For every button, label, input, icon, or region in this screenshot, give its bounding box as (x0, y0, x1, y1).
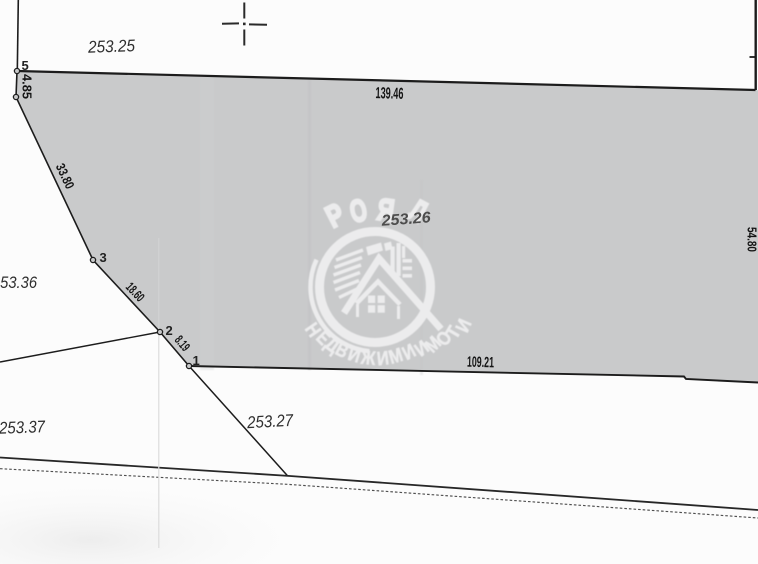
svg-text:2: 2 (166, 323, 173, 338)
svg-text:253.37: 253.37 (0, 417, 46, 438)
svg-text:3: 3 (100, 250, 107, 265)
svg-text:253.27: 253.27 (246, 411, 294, 432)
svg-text:253.26: 253.26 (380, 209, 431, 229)
svg-text:1: 1 (193, 353, 200, 368)
svg-text:139.46: 139.46 (375, 85, 403, 103)
svg-text:54.80: 54.80 (745, 227, 758, 252)
svg-text:4.85: 4.85 (20, 74, 35, 99)
svg-text:5: 5 (22, 58, 29, 73)
svg-text:253.36: 253.36 (0, 273, 37, 292)
svg-text:253.25: 253.25 (87, 36, 136, 57)
svg-text:Ж: Ж (359, 347, 377, 370)
svg-text:109.21: 109.21 (467, 354, 494, 372)
